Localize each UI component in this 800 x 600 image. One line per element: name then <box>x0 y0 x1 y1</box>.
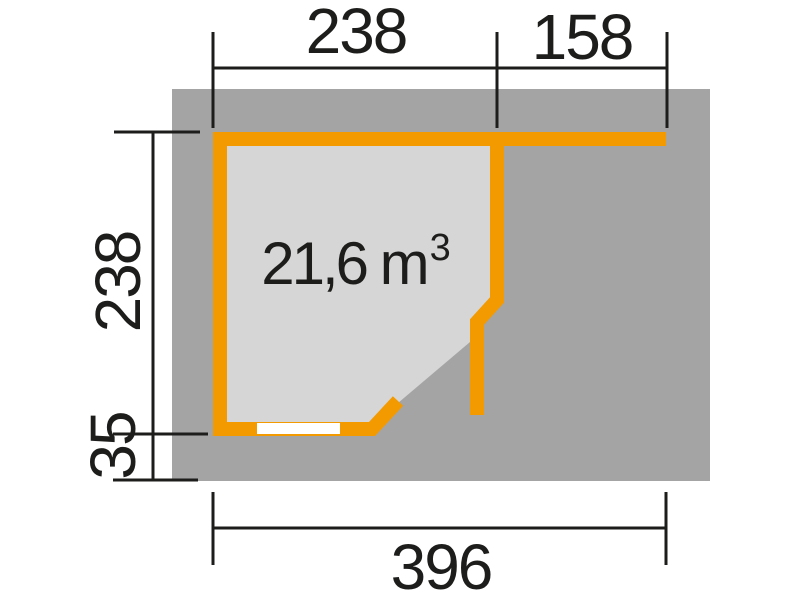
dim-label-side-height: 238 <box>86 232 150 333</box>
room-volume-label: 21,6 m3 <box>261 234 451 294</box>
dim-label-top-width-right: 158 <box>532 5 633 69</box>
room-volume-text: 21,6 m <box>261 230 426 297</box>
room-volume-exponent: 3 <box>430 229 451 267</box>
dim-label-total-width: 396 <box>391 535 492 599</box>
floor-plan-diagram: 238 158 238 35 396 21,6 m3 <box>0 0 800 600</box>
dim-label-side-overhang: 35 <box>81 412 145 479</box>
dim-label-top-width-left: 238 <box>306 0 407 63</box>
window-marker <box>257 423 340 434</box>
